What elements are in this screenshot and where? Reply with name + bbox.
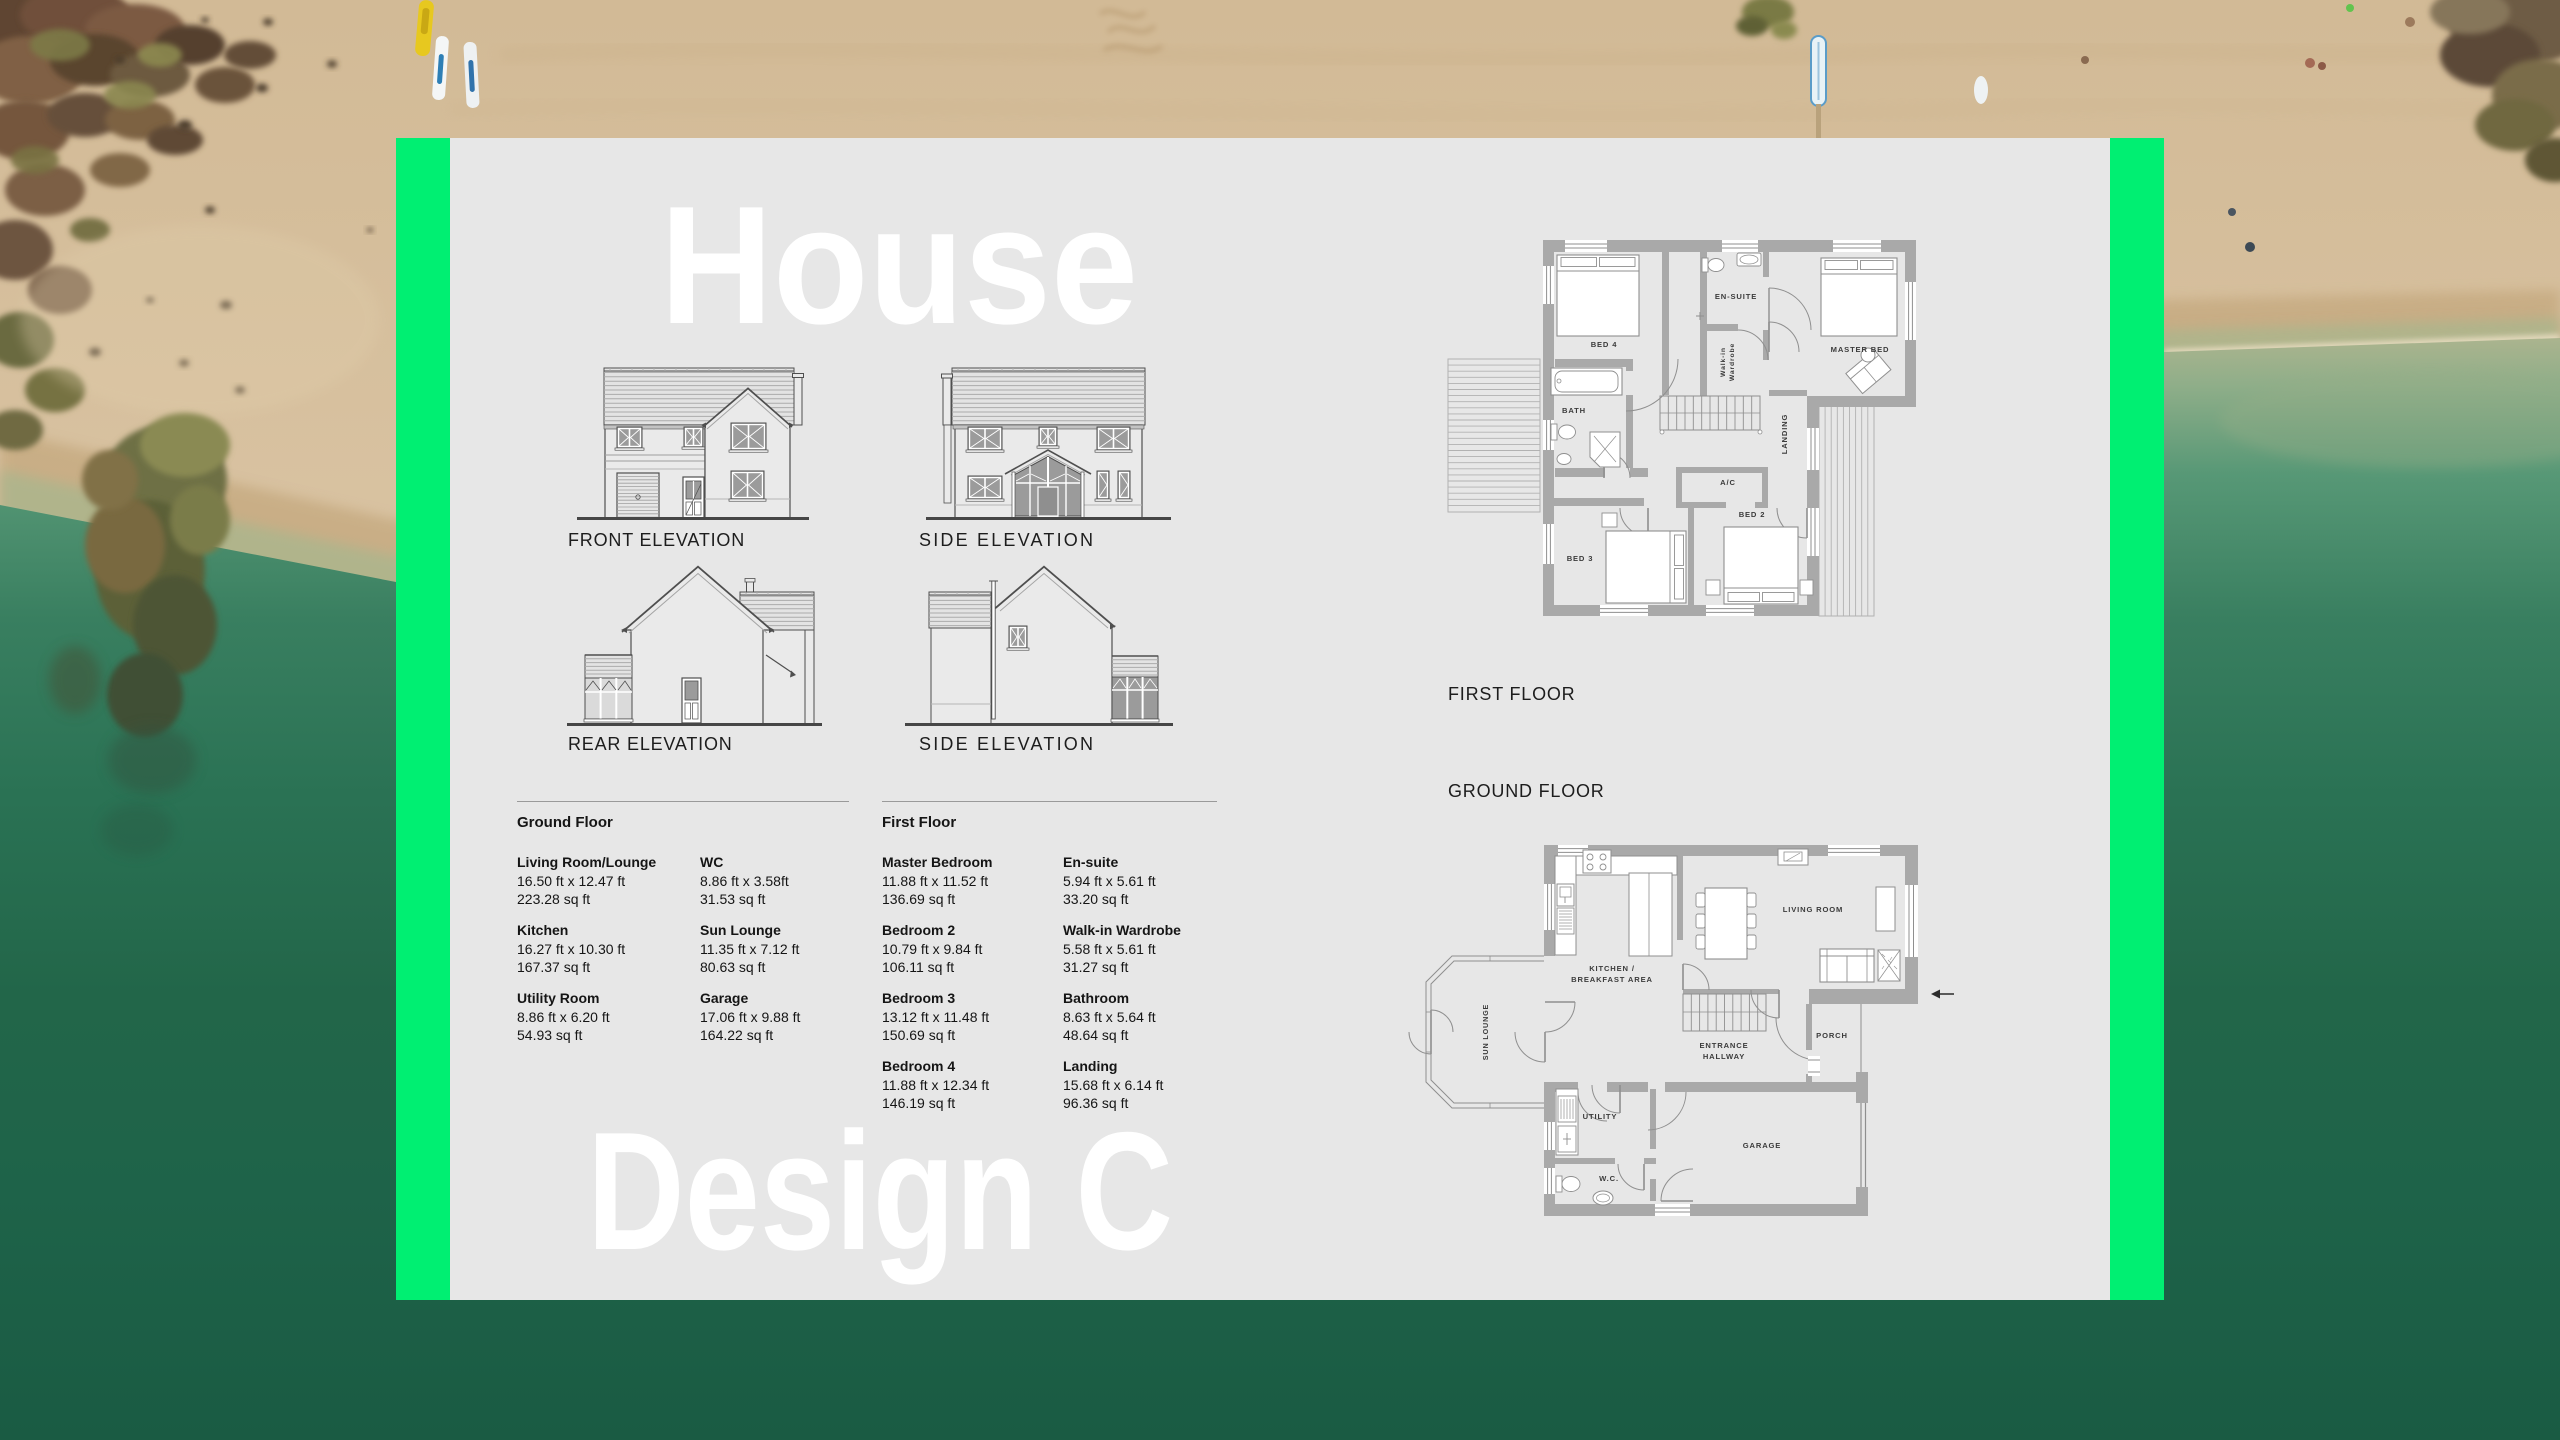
svg-text:EN-SUITE: EN-SUITE [1715, 292, 1757, 301]
svg-text:GARAGE: GARAGE [1743, 1141, 1781, 1150]
svg-text:Walk-in: Walk-in [1720, 347, 1727, 377]
svg-text:LIVING ROOM: LIVING ROOM [1783, 905, 1843, 914]
svg-text:BED 4: BED 4 [1591, 340, 1618, 349]
svg-text:HALLWAY: HALLWAY [1703, 1052, 1745, 1061]
svg-text:SUN LOUNGE: SUN LOUNGE [1481, 1004, 1490, 1060]
svg-text:BATH: BATH [1562, 406, 1586, 415]
svg-text:PORCH: PORCH [1816, 1031, 1848, 1040]
svg-text:BED 2: BED 2 [1739, 510, 1766, 519]
svg-text:MASTER BED: MASTER BED [1831, 345, 1890, 354]
svg-text:UTILITY: UTILITY [1583, 1112, 1618, 1121]
svg-text:BED 3: BED 3 [1567, 554, 1594, 563]
svg-text:ENTRANCE: ENTRANCE [1700, 1041, 1749, 1050]
svg-text:KITCHEN /: KITCHEN / [1589, 964, 1635, 973]
svg-text:LANDING: LANDING [1780, 414, 1789, 455]
svg-text:A/C: A/C [1720, 478, 1736, 487]
svg-text:W.C.: W.C. [1599, 1174, 1619, 1183]
svg-text:BREAKFAST AREA: BREAKFAST AREA [1571, 975, 1653, 984]
svg-text:Wardrobe: Wardrobe [1729, 343, 1736, 381]
